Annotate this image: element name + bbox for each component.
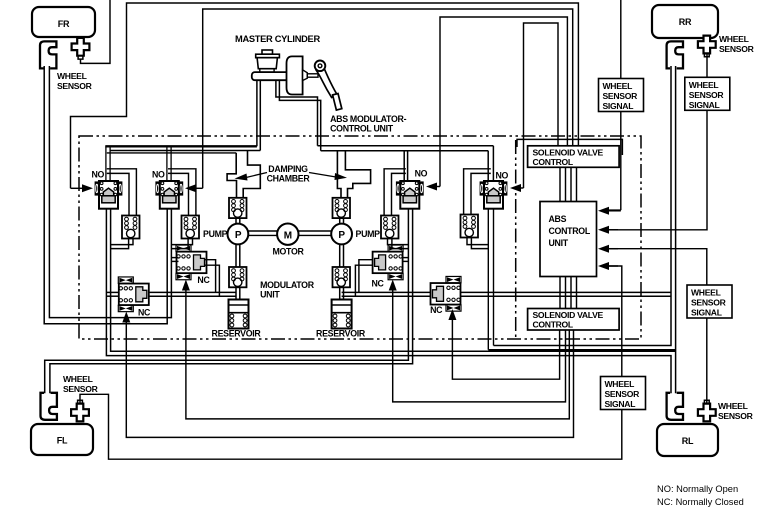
svg-text:MODULATOR: MODULATOR <box>260 280 315 290</box>
svg-text:RESERVOIR: RESERVOIR <box>212 329 262 339</box>
svg-text:WHEEL: WHEEL <box>691 288 721 298</box>
svg-text:FL: FL <box>57 436 68 446</box>
svg-text:RESERVOIR: RESERVOIR <box>316 329 366 339</box>
svg-text:UNIT: UNIT <box>260 289 280 299</box>
svg-text:CONTROL: CONTROL <box>533 320 573 330</box>
svg-text:DAMPING: DAMPING <box>268 164 308 174</box>
svg-text:RL: RL <box>682 436 694 446</box>
svg-text:WHEEL: WHEEL <box>605 379 635 389</box>
svg-text:MOTOR: MOTOR <box>272 247 304 257</box>
svg-text:NO: Normally Open: NO: Normally Open <box>657 484 738 494</box>
svg-text:SOLENOID VALVE: SOLENOID VALVE <box>533 148 604 158</box>
svg-text:ABS: ABS <box>549 214 567 224</box>
svg-text:RR: RR <box>679 17 692 27</box>
svg-text:NO: NO <box>496 171 509 181</box>
svg-text:SIGNAL: SIGNAL <box>691 308 722 318</box>
svg-text:SENSOR: SENSOR <box>603 91 639 101</box>
svg-text:PUMP: PUMP <box>356 229 381 239</box>
svg-text:SIGNAL: SIGNAL <box>605 399 636 409</box>
svg-text:SENSOR: SENSOR <box>719 44 755 54</box>
svg-text:WHEEL: WHEEL <box>719 34 749 44</box>
svg-text:WHEEL: WHEEL <box>689 80 719 90</box>
svg-text:P: P <box>235 230 242 241</box>
svg-text:NO: NO <box>92 170 105 180</box>
svg-text:CONTROL: CONTROL <box>533 157 573 167</box>
svg-text:P: P <box>338 230 345 241</box>
svg-text:WHEEL: WHEEL <box>603 81 633 91</box>
svg-text:FR: FR <box>58 19 70 29</box>
svg-text:SOLENOID VALVE: SOLENOID VALVE <box>533 310 604 320</box>
svg-text:SIGNAL: SIGNAL <box>603 101 634 111</box>
svg-text:CHAMBER: CHAMBER <box>267 174 311 184</box>
svg-text:NC: Normally Closed: NC: Normally Closed <box>657 497 744 507</box>
svg-text:NC: NC <box>430 305 443 315</box>
svg-text:SENSOR: SENSOR <box>689 90 725 100</box>
svg-text:WHEEL: WHEEL <box>718 401 748 411</box>
svg-text:SENSOR: SENSOR <box>718 411 754 421</box>
svg-text:CONTROL: CONTROL <box>549 226 591 236</box>
svg-text:M: M <box>284 230 292 241</box>
svg-text:NO: NO <box>415 169 428 179</box>
svg-text:NO: NO <box>152 170 165 180</box>
svg-text:SENSOR: SENSOR <box>57 81 93 91</box>
svg-text:MASTER CYLINDER: MASTER CYLINDER <box>235 34 320 44</box>
svg-text:NC: NC <box>372 278 385 288</box>
svg-text:ABS MODULATOR-: ABS MODULATOR- <box>330 114 406 124</box>
svg-text:SENSOR: SENSOR <box>63 384 99 394</box>
svg-text:PUMP: PUMP <box>203 229 228 239</box>
svg-text:WHEEL: WHEEL <box>63 374 93 384</box>
svg-text:SENSOR: SENSOR <box>691 298 727 308</box>
svg-text:WHEEL: WHEEL <box>57 71 87 81</box>
svg-text:SENSOR: SENSOR <box>605 389 641 399</box>
svg-text:NC: NC <box>138 307 151 317</box>
svg-text:NC: NC <box>197 275 210 285</box>
svg-text:SIGNAL: SIGNAL <box>689 100 720 110</box>
svg-text:CONTROL UNIT: CONTROL UNIT <box>330 123 394 133</box>
svg-text:UNIT: UNIT <box>549 238 569 248</box>
